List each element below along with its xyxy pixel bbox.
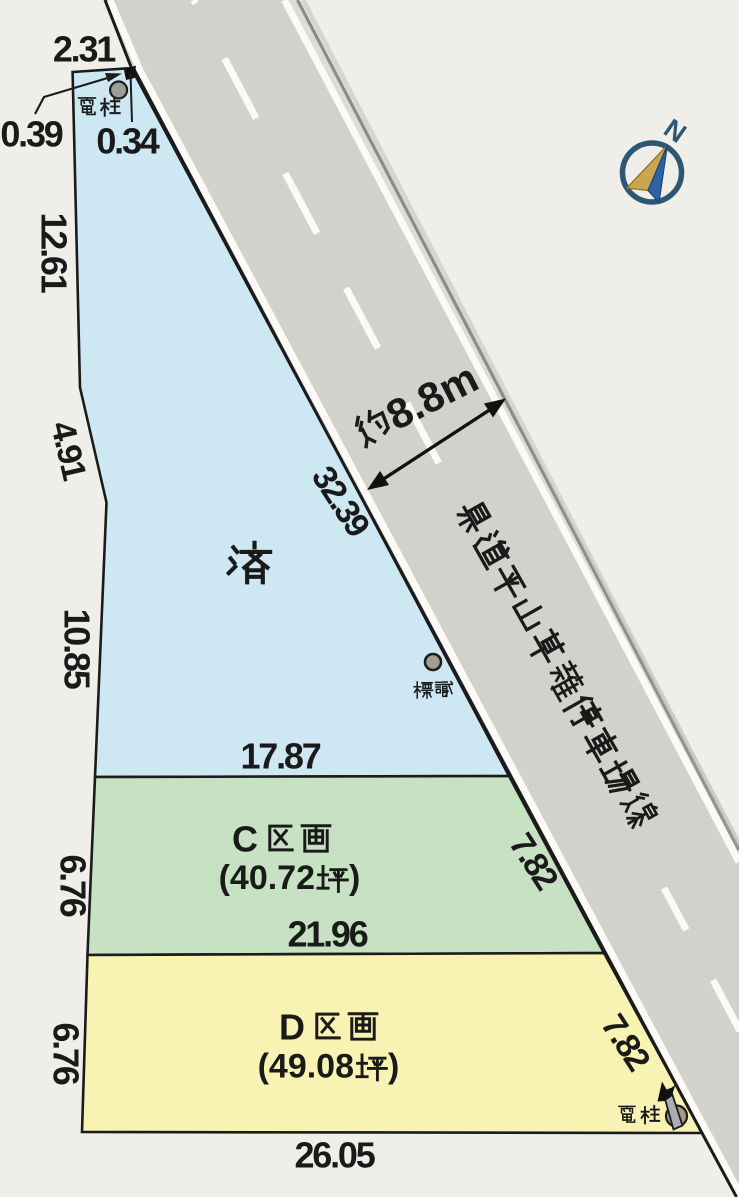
svg-text:0.34: 0.34: [96, 121, 159, 162]
svg-text:0.39: 0.39: [0, 114, 62, 155]
svg-text:D: D: [279, 1007, 305, 1048]
svg-text:(40.72: (40.72: [219, 859, 315, 897]
svg-text:2.31: 2.31: [53, 29, 116, 70]
svg-text:26.05: 26.05: [294, 1135, 375, 1176]
svg-text:6.76: 6.76: [46, 1022, 87, 1084]
svg-text:6.76: 6.76: [53, 854, 94, 916]
svg-text:(49.08: (49.08: [258, 1048, 354, 1086]
svg-text:17.87: 17.87: [240, 736, 320, 777]
svg-text:C: C: [232, 819, 258, 860]
svg-text:12.61: 12.61: [34, 212, 75, 293]
svg-text:21.96: 21.96: [287, 914, 367, 955]
svg-text:): ): [349, 859, 360, 897]
svg-text:): ): [388, 1048, 399, 1086]
svg-text:10.85: 10.85: [57, 608, 98, 689]
